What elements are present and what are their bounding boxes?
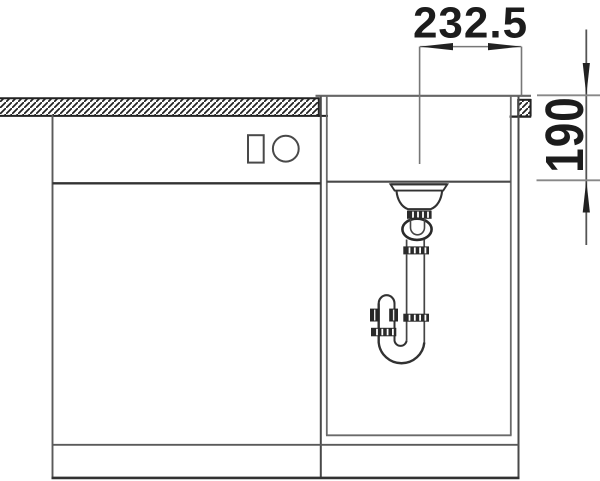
svg-text:232.5: 232.5 [413,0,528,47]
svg-text:190: 190 [536,96,595,172]
